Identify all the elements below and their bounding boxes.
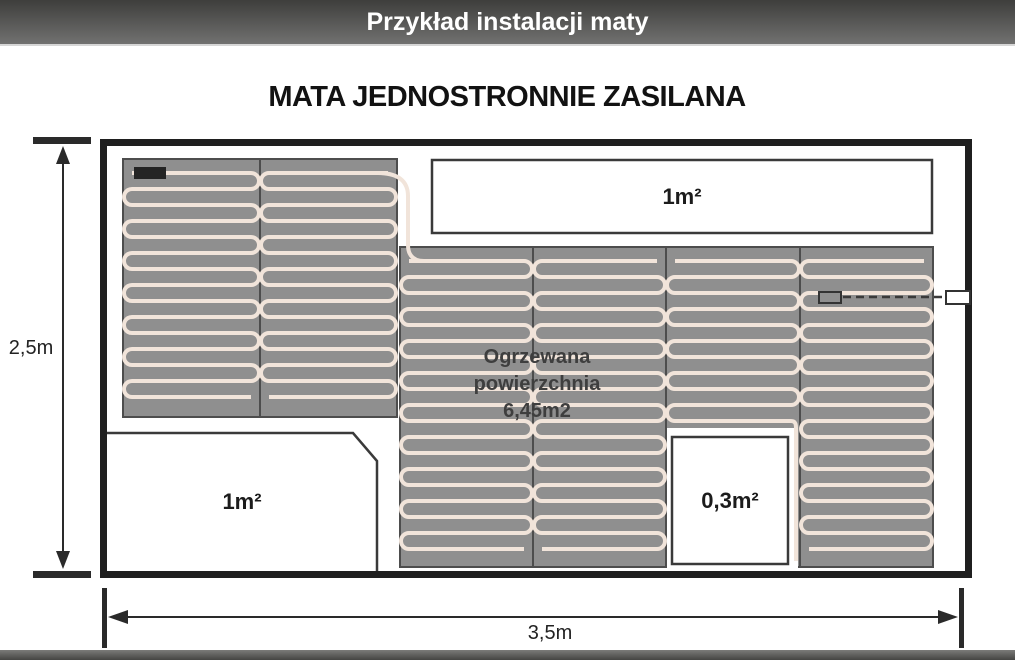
heating-mat-panel [123,159,260,417]
heated-area-line2: powierzchnia [427,371,647,398]
heating-mat-panel [260,159,397,417]
heated-area-label: Ogrzewana powierzchnia 6,45m2 [427,344,647,425]
footer-bar [0,650,1015,660]
height-dimension-label: 2,5m [0,337,62,360]
wall-outlet-box [946,291,970,304]
temperature-sensor [819,292,841,303]
heated-area-line1: Ogrzewana [427,344,647,371]
heated-area-line3: 6,45m2 [427,398,647,425]
width-dimension-label: 3,5m [470,622,630,645]
installation-diagram [0,0,1015,660]
uncovered-area-bottom-left-label: 1m² [132,489,352,515]
power-lead-connector [134,167,166,179]
heating-cable [124,173,259,397]
uncovered-area-top-label: 1m² [432,160,932,233]
heating-cable [261,173,396,397]
uncovered-area-small-label: 0,3m² [672,437,788,564]
